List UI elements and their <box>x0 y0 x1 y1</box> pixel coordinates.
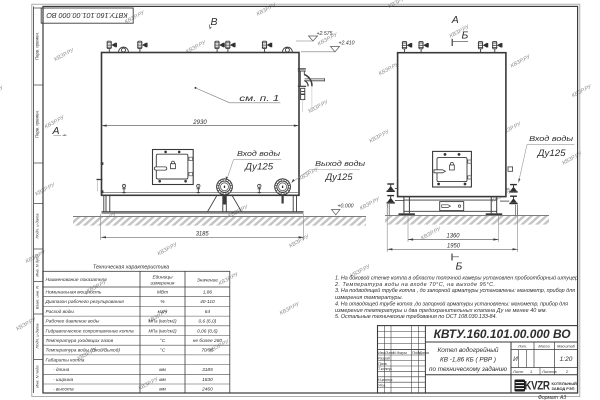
svg-text:Температура уходящих газов: Температура уходящих газов <box>46 338 114 344</box>
svg-text:1950: 1950 <box>447 242 460 249</box>
svg-text:Масштаб: Масштаб <box>557 345 576 349</box>
svg-text:Подп. и дата: Подп. и дата <box>35 323 40 349</box>
svg-text:Масса: Масса <box>538 345 549 349</box>
svg-text:- высота: - высота <box>53 388 74 393</box>
svg-text:Выход воды: Выход воды <box>315 159 365 168</box>
svg-text:Номинальная мощность: Номинальная мощность <box>46 290 103 296</box>
svg-text:Расход воды: Расход воды <box>46 309 75 315</box>
svg-text:Единицы: Единицы <box>152 275 173 281</box>
svg-text:А3: А3 <box>559 395 566 400</box>
svg-text:Б: Б <box>456 261 463 273</box>
svg-text:Взам. инв. N: Взам. инв. N <box>35 286 40 309</box>
svg-text:°С: °С <box>160 338 166 344</box>
svg-text:Техническая характеристика: Техническая характеристика <box>93 265 169 271</box>
svg-text:Б: Б <box>462 30 469 42</box>
svg-text:Инв. N дубл.: Инв. N дубл. <box>35 253 40 276</box>
svg-text:Гидравлическое сопротивление к: Гидравлическое сопротивление котла <box>46 328 134 334</box>
svg-text:Ду125: Ду125 <box>536 148 565 158</box>
svg-text:В: В <box>211 16 218 28</box>
svg-text:3185: 3185 <box>202 367 213 373</box>
svg-text:Температура воды (Вход/Выход): Температура воды (Вход/Выход) <box>46 348 121 354</box>
svg-text:2930: 2930 <box>192 119 207 126</box>
svg-text:2460: 2460 <box>201 387 213 393</box>
svg-text:Вход воды: Вход воды <box>237 149 280 158</box>
svg-text:см. п. 1: см. п. 1 <box>239 94 279 103</box>
svg-text:70/95: 70/95 <box>201 348 213 354</box>
svg-text:4. На отводящей трубе котла ,: 4. На отводящей трубе котла ,до запорной… <box>335 301 568 308</box>
svg-text:Вход воды: Вход воды <box>529 134 573 143</box>
svg-text:Подп. и дата: Подп. и дата <box>35 213 40 239</box>
svg-text:Габариты котла: Габариты котла <box>46 357 85 363</box>
svg-text:3185: 3185 <box>196 231 209 238</box>
svg-text:0,6 (6,0): 0,6 (6,0) <box>198 319 216 325</box>
svg-text:Пров.: Пров. <box>378 362 387 366</box>
svg-text:40-110: 40-110 <box>200 299 215 305</box>
svg-text:по техническому заданию: по техническому заданию <box>429 367 508 373</box>
svg-text:не более 280: не более 280 <box>193 338 223 344</box>
svg-text:1360: 1360 <box>447 233 460 240</box>
svg-text:И: И <box>513 356 518 363</box>
svg-text:KVZR: KVZR <box>524 380 550 393</box>
svg-text:Т.контр.: Т.контр. <box>378 367 393 371</box>
svg-text:ЗАВОД РЭП: ЗАВОД РЭП <box>552 386 575 391</box>
svg-text:%: % <box>160 299 165 305</box>
svg-text:Наименование показателя: Наименование показателя <box>46 277 108 283</box>
svg-text:А: А <box>451 14 459 26</box>
svg-text:0,06 (0,6): 0,06 (0,6) <box>197 328 218 334</box>
svg-text:Инв. N подл.: Инв. N подл. <box>35 364 40 387</box>
svg-text:Формат: Формат <box>538 395 558 400</box>
svg-text:КВ -1,86 КБ ( РВР ): КВ -1,86 КБ ( РВР ) <box>440 357 496 363</box>
svg-text:КВТУ.160.101.00.000 ВО: КВТУ.160.101.00.000 ВО <box>434 329 571 341</box>
svg-text:- ширина: - ширина <box>53 378 74 383</box>
svg-text:Рабочее давление воды: Рабочее давление воды <box>46 319 100 325</box>
svg-text:1. На боковой стенке котла в: 1. На боковой стенке котла в области топ… <box>335 274 578 281</box>
svg-text:Лист: Лист <box>512 369 524 374</box>
svg-text:3. На подводящей трубе котла: 3. На подводящей трубе котла , до запорн… <box>335 287 575 294</box>
svg-text:Перв. примен.: Перв. примен. <box>35 110 40 138</box>
svg-text:1:20: 1:20 <box>560 356 573 363</box>
svg-text:измерения: измерения <box>150 282 174 287</box>
svg-text:1830: 1830 <box>202 377 213 383</box>
svg-text:1: 1 <box>530 369 532 374</box>
svg-text:Котел водогрейный: Котел водогрейный <box>438 347 500 354</box>
svg-text:Дата: Дата <box>418 351 428 355</box>
svg-text:°С: °С <box>160 348 166 354</box>
svg-text:КВТУ.160.101.00.000 ВО: КВТУ.160.101.00.000 ВО <box>46 11 128 20</box>
svg-text:+2.410: +2.410 <box>339 41 355 47</box>
svg-text:- длина: - длина <box>53 367 70 373</box>
svg-text:мм: мм <box>159 388 166 393</box>
svg-text:мм: мм <box>159 368 166 373</box>
svg-text:измерения температуры и два пр: измерения температуры и два предохраните… <box>335 308 547 314</box>
svg-text:м3/ч: м3/ч <box>158 309 168 315</box>
svg-text:Ду125: Ду125 <box>325 172 353 182</box>
svg-text:Ду125: Ду125 <box>244 162 273 172</box>
svg-text:64: 64 <box>205 309 211 315</box>
svg-text:Разраб.: Разраб. <box>378 356 391 360</box>
svg-text:МВт: МВт <box>157 290 168 296</box>
svg-text:Утв.: Утв. <box>378 383 386 387</box>
svg-text:Н.контр.: Н.контр. <box>378 378 393 382</box>
svg-text:Перв. примен.: Перв. примен. <box>35 32 40 60</box>
svg-text:Листов: Листов <box>541 369 557 374</box>
svg-text:Лит.: Лит. <box>517 345 527 349</box>
svg-text:1,86: 1,86 <box>203 290 213 296</box>
svg-text:+2.575: +2.575 <box>317 31 333 37</box>
svg-text:Диапазон рабочего регулировани: Диапазон рабочего регулирования <box>45 299 125 305</box>
svg-text:Значение: Значение <box>197 278 218 284</box>
svg-text:5. Остальные технические треб: 5. Остальные технические требования по О… <box>335 314 497 320</box>
svg-text:МПа (кгс/см2): МПа (кгс/см2) <box>148 328 177 333</box>
svg-text:+0.000: +0.000 <box>338 204 354 210</box>
svg-text:А: А <box>52 125 60 137</box>
svg-text:N докум.: N докум. <box>393 351 408 355</box>
svg-text:измерения температуры.: измерения температуры. <box>335 295 403 301</box>
svg-text:МПа (кгс/см2): МПа (кгс/см2) <box>148 319 177 324</box>
svg-text:мм: мм <box>159 378 166 383</box>
